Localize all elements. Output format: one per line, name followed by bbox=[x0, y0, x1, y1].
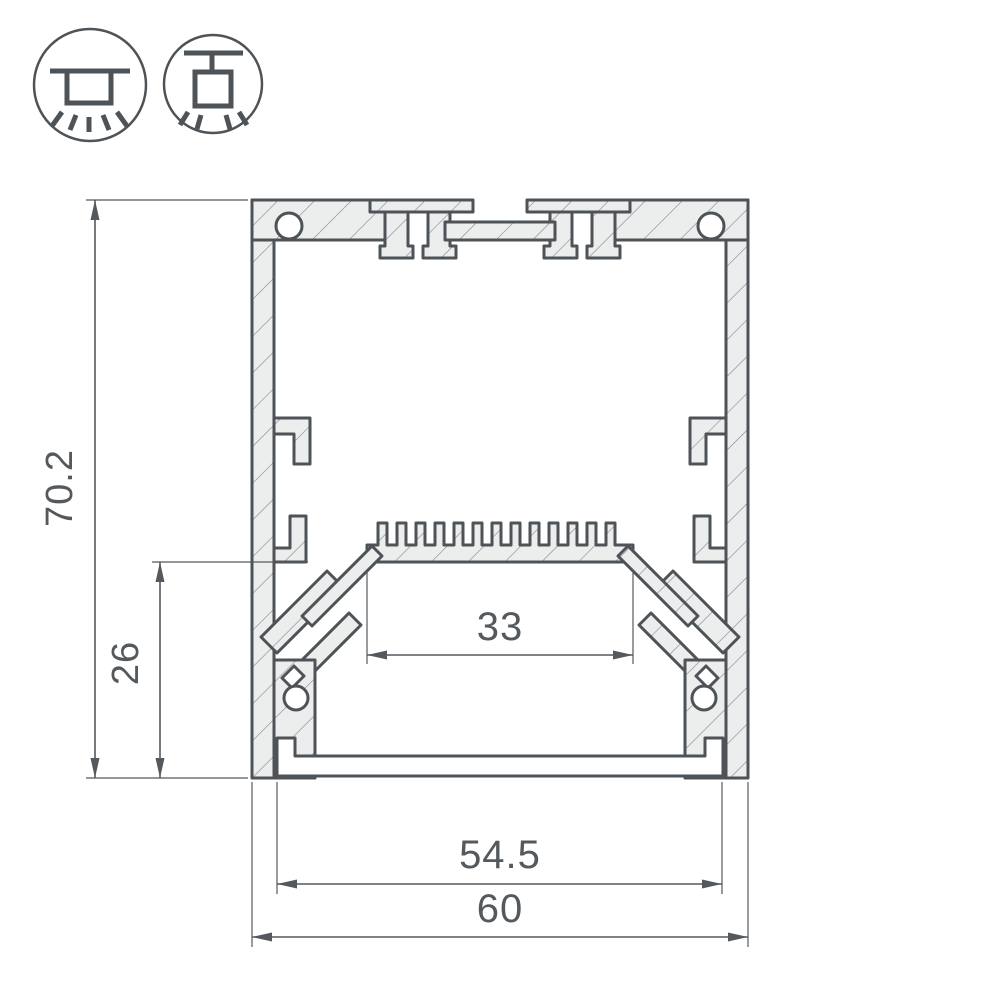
lower-hook-left bbox=[274, 516, 306, 562]
right-wall bbox=[726, 200, 748, 778]
dim-label-inner-width: 33 bbox=[477, 605, 524, 649]
top-plate-thin-left bbox=[370, 200, 473, 212]
dim-label-overall-width: 60 bbox=[477, 887, 524, 931]
dim-label-side-depth: 26 bbox=[105, 641, 147, 685]
mounting-type-icons bbox=[34, 29, 262, 141]
dim-label-overall-height: 70.2 bbox=[39, 449, 81, 527]
profile-cross-section bbox=[252, 200, 748, 778]
center-web bbox=[445, 222, 555, 240]
t-leg-1 bbox=[380, 212, 413, 258]
keyhole-right bbox=[692, 686, 716, 710]
diffuser-cover bbox=[277, 738, 723, 776]
heatsink-plate bbox=[367, 523, 633, 562]
screw-port-top-right bbox=[698, 213, 724, 239]
screw-port-top-left bbox=[276, 213, 302, 239]
keyhole-left bbox=[284, 686, 308, 710]
top-plate-right bbox=[614, 200, 748, 240]
led-profile-section-drawing: 70.2 26 33 54.5 60 bbox=[0, 0, 1000, 1000]
top-plate-thin-right bbox=[527, 200, 630, 212]
upper-hook-right bbox=[690, 418, 726, 464]
dim-label-diffuser-width: 54.5 bbox=[459, 833, 541, 877]
surface-mount-icon bbox=[34, 29, 146, 141]
t-leg-4 bbox=[587, 212, 620, 258]
upper-hook-left bbox=[274, 418, 310, 464]
left-wall bbox=[252, 200, 274, 778]
technical-drawing-page: 70.2 26 33 54.5 60 bbox=[0, 0, 1000, 1000]
top-plate-left bbox=[252, 200, 386, 240]
lower-hook-right bbox=[694, 516, 726, 562]
pendant-mount-icon bbox=[164, 35, 262, 133]
